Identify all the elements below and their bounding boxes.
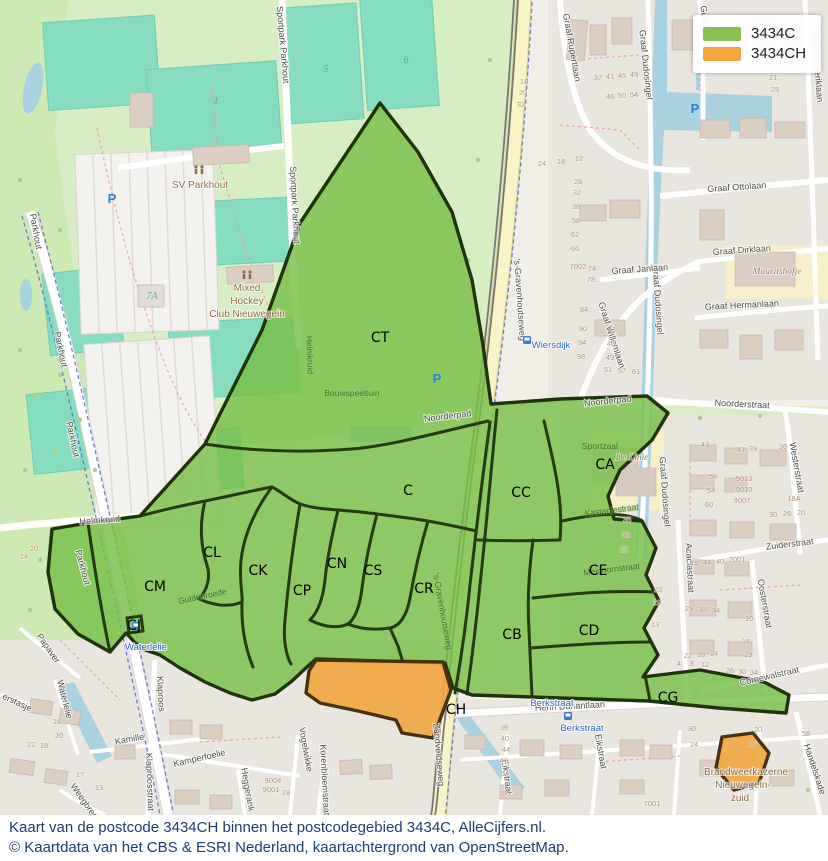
house-number: 54 <box>501 769 509 778</box>
house-number: 20 <box>519 88 527 97</box>
house-number: 10 <box>745 614 753 623</box>
region-label-CM: CM <box>144 579 166 595</box>
house-number: 94 <box>578 338 586 347</box>
poi-label: Mauritshofje <box>751 266 801 277</box>
map-caption: Kaart van de postcode 3434CH binnen het … <box>0 815 828 861</box>
legend: 3434C3434CH <box>693 15 821 73</box>
house-number: 46 <box>606 92 614 101</box>
house-number: 9004 <box>265 776 282 785</box>
house-number: 98 <box>577 352 585 361</box>
house-number: 9007 <box>734 496 751 505</box>
map-canvas: GuldenroedeKastanjestraatMeidoornstraatH… <box>0 0 828 815</box>
house-number: 25 <box>771 85 779 94</box>
house-number: 12 <box>701 660 709 669</box>
house-number: 26 <box>783 509 791 518</box>
poi-label: Mixed <box>234 283 261 294</box>
house-number: 18 <box>40 741 48 750</box>
poi-label: Nieuwegein- <box>715 780 771 791</box>
pitch-number: 6 <box>404 55 409 66</box>
overlay-street-label: Sportzaal <box>582 441 618 451</box>
house-number: 28 <box>574 177 582 186</box>
house-number: 16 <box>749 739 757 748</box>
house-number: 20 <box>754 725 762 734</box>
poi-label: zuid <box>731 793 749 804</box>
house-number: 36 <box>779 442 787 451</box>
house-number: 17 <box>76 770 84 779</box>
house-number: 19 <box>653 598 661 607</box>
house-number: 58 <box>709 472 717 481</box>
house-number: 25 <box>620 545 628 554</box>
transit-label: Berkstraat <box>560 723 604 734</box>
house-number: 26 <box>726 666 734 675</box>
transit-label: Wiersdijk <box>532 340 571 351</box>
house-number: 49 <box>630 70 638 79</box>
transit-label: Berkstraat <box>530 698 574 709</box>
caption-line1: Kaart van de postcode 3434CH binnen het … <box>0 815 828 838</box>
house-number: 23 <box>654 585 662 594</box>
house-number: 12 <box>575 154 583 163</box>
bus-stop-icon-glyph <box>525 338 530 341</box>
house-number: 24 <box>690 740 698 749</box>
poi-label: Club Nieuwegein <box>209 309 285 320</box>
sports-icon <box>194 165 197 168</box>
house-number: 41 <box>606 72 614 81</box>
sports-icon <box>242 270 245 273</box>
region-label-CR: CR <box>414 581 434 597</box>
house-number: 84 <box>580 305 588 314</box>
region-label-CP: CP <box>293 583 311 599</box>
house-number: 54 <box>707 486 715 495</box>
house-number: 18 <box>697 650 705 659</box>
house-number: 35 <box>623 515 631 524</box>
parking-icon: P <box>691 101 700 116</box>
pitch-number: 7A <box>146 291 158 302</box>
region-label-CG: CG <box>658 690 679 706</box>
house-number: 49 <box>606 353 614 362</box>
house-number: 7002 <box>570 262 587 271</box>
sports-icon <box>200 165 203 168</box>
house-number: 18A <box>787 494 800 503</box>
street-label: Klaproosstraat <box>144 753 156 812</box>
house-number: 90 <box>579 324 587 333</box>
house-number: 36 <box>500 723 508 732</box>
house-number: 41 <box>608 325 616 334</box>
street-label: Klaproos <box>155 676 167 712</box>
house-number: 66 <box>571 244 579 253</box>
sports-icon <box>243 274 246 279</box>
region-label-CJ: CJ <box>127 618 141 634</box>
caption-line2: © Kaartdata van het CBS & ESRI Nederland… <box>0 838 828 858</box>
house-number: 57 <box>618 366 626 375</box>
house-number: 14 <box>710 649 718 658</box>
house-number: 16 <box>742 637 750 646</box>
house-number: 44 <box>703 558 711 567</box>
house-number: 18 <box>520 77 528 86</box>
region-label-CL: CL <box>203 545 221 561</box>
house-number: 60 <box>502 789 510 798</box>
house-number: 22 <box>27 740 35 749</box>
house-number: 39 <box>749 444 757 453</box>
region-label-CH: CH <box>446 702 466 718</box>
house-number: 24 <box>538 159 546 168</box>
house-number: 16 <box>53 717 61 726</box>
house-number: 13 <box>651 620 659 629</box>
house-number: 32 <box>573 188 581 197</box>
house-number: 9010 <box>736 485 753 494</box>
house-number: 46 <box>500 756 508 765</box>
parking-icon: P <box>108 191 117 206</box>
house-number: 4 <box>677 659 681 668</box>
house-number: 41 <box>737 445 745 454</box>
house-number: 20 <box>797 508 805 517</box>
legend-swatch <box>703 47 741 61</box>
house-number: 30 <box>738 667 746 676</box>
house-number: 9001 <box>263 785 280 794</box>
house-number: 30 <box>698 605 706 614</box>
house-number: 61 <box>632 367 640 376</box>
house-number: 58 <box>802 729 810 738</box>
house-number: 48 <box>690 559 698 568</box>
house-number: 37 <box>594 73 602 82</box>
region-label-CA: CA <box>595 457 615 473</box>
region-label-CT: CT <box>371 330 390 346</box>
house-number: 30 <box>769 510 777 519</box>
region-label-CS: CS <box>364 563 383 579</box>
house-number: 58 <box>572 216 580 225</box>
house-number: 38 <box>572 202 580 211</box>
legend-label: 3434CH <box>751 45 806 62</box>
house-number: 30 <box>688 724 696 733</box>
house-number: 51 <box>604 365 612 374</box>
house-number: 28 <box>282 788 290 797</box>
poi-label: De Linie <box>615 453 649 463</box>
overlay-street-label: Helmkruid <box>304 336 315 375</box>
region-label-C: C <box>403 483 413 499</box>
region-label-CN: CN <box>327 556 347 572</box>
house-number: 54 <box>630 90 638 99</box>
pitch-number: 1 <box>214 96 219 107</box>
legend-row-3434C: 3434C <box>703 25 811 42</box>
house-number: 18 <box>557 157 565 166</box>
house-number: 74 <box>588 264 596 273</box>
legend-label: 3434C <box>751 25 795 42</box>
house-number: 20 <box>55 731 63 740</box>
house-number: 14 <box>20 552 28 561</box>
house-number: 32 <box>517 100 525 109</box>
pitch-number: 5 <box>324 64 329 75</box>
legend-swatch <box>703 27 741 41</box>
house-number: 34 <box>750 668 758 677</box>
house-number: 44 <box>502 745 510 754</box>
sports-icon <box>248 270 251 273</box>
region-label-CK: CK <box>249 563 269 579</box>
house-number: 78 <box>587 275 595 284</box>
poi-label: Brandweerkazerne <box>704 767 788 778</box>
postcode-map-page: GuldenroedeKastanjestraatMeidoornstraatH… <box>0 0 828 861</box>
house-number: 20 <box>30 544 38 553</box>
house-number: 40 <box>501 734 509 743</box>
house-number: 45 <box>618 71 626 80</box>
house-number: 60 <box>705 500 713 509</box>
region-label-CE: CE <box>589 563 608 579</box>
house-number: 7001 <box>729 555 746 564</box>
house-number: 45 <box>607 339 615 348</box>
sports-icon <box>249 274 252 279</box>
house-number: 19 <box>744 650 752 659</box>
house-number: 34 <box>712 606 720 615</box>
house-number: 40 <box>716 557 724 566</box>
region-label-CD: CD <box>579 623 600 639</box>
legend-row-3434CH: 3434CH <box>703 45 811 62</box>
poi-label: Hockey <box>230 296 263 307</box>
house-number: 7001 <box>644 799 661 808</box>
house-number: 43 <box>701 440 709 449</box>
region-label-CC: CC <box>511 485 531 501</box>
transit-label: Waterlelie <box>125 642 167 653</box>
poi-label: SV Parkhout <box>172 180 228 191</box>
parking-icon: P <box>433 371 442 386</box>
house-number: 62 <box>571 230 579 239</box>
house-number: 21 <box>769 73 777 82</box>
overlay-street-label: Bouwspeeltuin <box>324 388 380 398</box>
basemap-svg: GuldenroedeKastanjestraatMeidoornstraatH… <box>0 0 828 815</box>
house-number: 13 <box>95 783 103 792</box>
house-number: 9013 <box>736 474 753 483</box>
region-label-CB: CB <box>502 627 521 643</box>
house-number: 8 <box>690 659 694 668</box>
house-number: 50 <box>618 91 626 100</box>
sports-icon <box>195 169 198 174</box>
sports-icon <box>201 169 204 174</box>
house-number: 31 <box>622 530 630 539</box>
bus-stop-icon-glyph <box>566 714 571 717</box>
house-number: 29 <box>685 604 693 613</box>
